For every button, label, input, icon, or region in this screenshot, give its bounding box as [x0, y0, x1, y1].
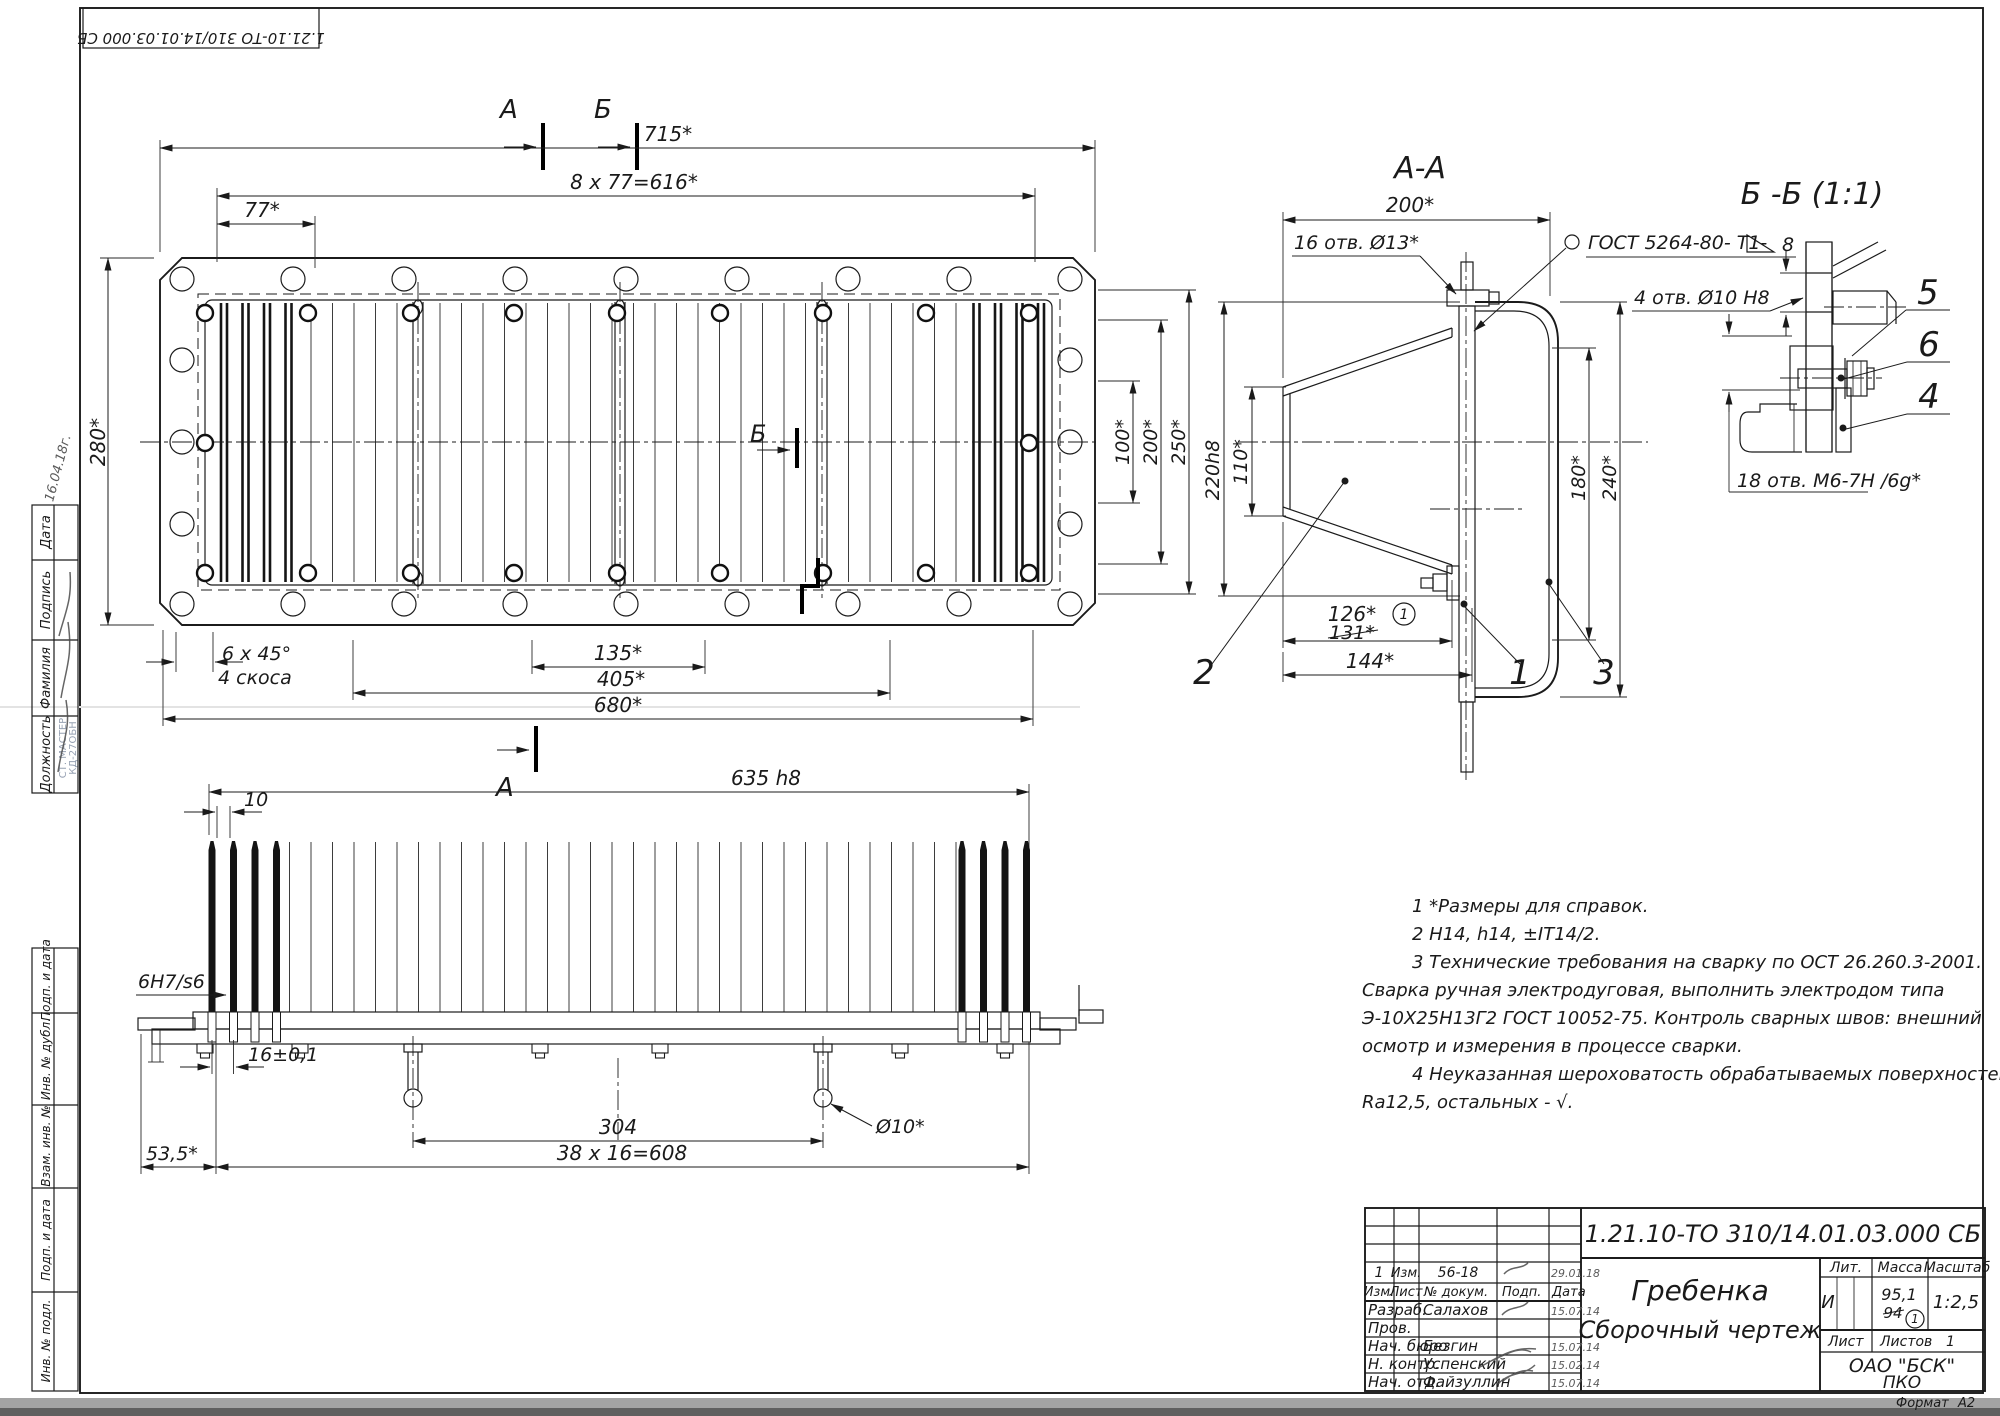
tb-mass-label: Масса — [1878, 1260, 1923, 1276]
callout-3: 3 — [1593, 653, 1615, 693]
callout-2: 2 — [1193, 653, 1215, 693]
tb-change-doc: 56-18 — [1438, 1265, 1479, 1281]
rev-mark: 1 — [1400, 607, 1409, 623]
dim-16: 16±0,1 — [248, 1044, 318, 1066]
dim-304: 304 — [599, 1115, 637, 1139]
drawing-sheet: 1.21.10-ТО 310/14.01.03.000 СБ Дата Подп… — [0, 0, 2000, 1416]
tb-scale-value: 1:2,5 — [1933, 1292, 1979, 1313]
plan-view: А Б Б А 715* 8 x 77=616* 77* 280* — [86, 95, 1196, 803]
corner-stamp: 1.21.10-ТО 310/14.01.03.000 СБ — [77, 8, 325, 48]
note-line: Э-10Х25Н13Г2 ГОСТ 10052-75. Контроль сва… — [1361, 1008, 1982, 1029]
dim-aa-200: 200* — [1386, 193, 1434, 217]
margin-stamp-top: Дата Подпись Фамилия Должность СТ. МАСТЕ… — [32, 433, 79, 794]
margin-handwriting: 16.04.18г. — [42, 433, 74, 503]
tb-format-value: А2 — [1957, 1396, 1975, 1411]
tb-part-name: Гребенка — [1631, 1274, 1768, 1307]
dim-110: 110* — [1230, 439, 1252, 485]
tb-name: Файзуллин — [1423, 1373, 1511, 1391]
label-holes-m6: 18 отв. М6-7Н /6g* — [1737, 470, 1921, 492]
dim-fit: 6H7/s6 — [138, 971, 205, 993]
tb-date: 15.07.14 — [1551, 1341, 1600, 1354]
dim-405: 405* — [597, 667, 645, 691]
detail-bb-view: Б -Б (1:1) 4 отв. Ø10 Н8 18 отв. — [1632, 177, 1950, 492]
callout-6: 6 — [1918, 325, 1940, 365]
dim-dia10: Ø10* — [875, 1116, 925, 1138]
tb-sheets-value: 1 — [1946, 1334, 1955, 1350]
dim-608: 38 x 16=608 — [557, 1141, 687, 1165]
label-holes10: 4 отв. Ø10 Н8 — [1634, 287, 1770, 309]
note-line: осмотр и измерения в процессе сварки. — [1362, 1036, 1743, 1057]
callout-5: 5 — [1917, 273, 1939, 313]
dim-131-old: 131* — [1329, 622, 1375, 644]
tb-header-doc: № докум. — [1423, 1285, 1488, 1300]
stamp-label-dolzhnost: Должность — [39, 716, 54, 794]
tb-org-line2: ПКО — [1883, 1373, 1921, 1393]
stamp-label: Подп. и дата — [39, 1199, 53, 1281]
section-mark-a-top: А — [498, 95, 518, 125]
tb-date: 15.07.14 — [1551, 1377, 1600, 1390]
callout-4: 4 — [1918, 377, 1940, 417]
tb-name: Успенский — [1423, 1355, 1506, 1373]
weld-leg: 8 — [1782, 234, 1794, 256]
dim-77: 77* — [244, 198, 279, 222]
tb-role: Пров. — [1368, 1319, 1412, 1337]
tb-header-list: Лист — [1389, 1285, 1423, 1300]
dim-144: 144* — [1346, 649, 1394, 673]
tb-change-num: 1 — [1375, 1265, 1384, 1281]
bolts — [197, 1044, 1013, 1058]
dim-chamfer-note: 4 скоса — [218, 667, 292, 689]
engineering-drawing-canvas: 1.21.10-ТО 310/14.01.03.000 СБ Дата Подп… — [0, 0, 2000, 1416]
dim-635h8: 635 h8 — [731, 766, 801, 790]
technical-notes: 1 *Размеры для справок. 2 Н14, h14, ±IT1… — [1079, 896, 2000, 1113]
dim-280: 280* — [86, 418, 110, 466]
stamp-label: Взам. инв. № — [39, 1105, 53, 1186]
tb-change-date: 29.01.18 — [1551, 1267, 1600, 1280]
flange-plate — [1421, 262, 1499, 772]
tb-change-izm: Изм. — [1391, 1266, 1422, 1281]
note-line: 1 *Размеры для справок. — [1412, 896, 1648, 917]
label-holes13: 16 отв. Ø13* — [1294, 232, 1419, 254]
tb-sheet-label: Лист — [1827, 1334, 1864, 1350]
dim-53: 53,5* — [146, 1143, 198, 1165]
side-view: 635 h8 10 — [136, 766, 1076, 1174]
tb-role: Разраб. — [1368, 1301, 1427, 1319]
stamp-label: Подп. и дата — [39, 939, 53, 1021]
margin-stamp-bottom: Подп. и дата Инв. № дубл. Взам. инв. № П… — [32, 939, 78, 1391]
tb-doc-number: 1.21.10-ТО 310/14.01.03.000 СБ — [1585, 1220, 1982, 1248]
dim-135: 135* — [594, 641, 642, 665]
tb-doc-type: Сборочный чертеж — [1579, 1316, 1822, 1344]
tb-sheets-label: Листов — [1879, 1334, 1932, 1350]
stamp-label: Инв. № дубл. — [39, 1018, 53, 1100]
tb-header-sign: Подп. — [1502, 1285, 1541, 1300]
tb-lit-label: Лит. — [1829, 1260, 1862, 1276]
stamp-label: Инв. № подл. — [39, 1300, 53, 1383]
section-aa-title: А-А — [1392, 151, 1446, 186]
dim-180: 180* — [1568, 455, 1590, 501]
stamp-label-familiya: Фамилия — [39, 647, 54, 709]
dim-680: 680* — [594, 693, 642, 717]
dim-200: 200* — [1140, 419, 1162, 465]
dim-chamfer: 6 x 45° — [222, 643, 291, 665]
note-line: 4 Неуказанная шероховатость обрабатываем… — [1412, 1064, 2000, 1085]
section-mark-b-inner: Б — [750, 420, 766, 448]
section-aa-view: А-А 200* 16 отв. Ø13* ГОСТ 5264-80- Т1- … — [1193, 151, 1796, 780]
tb-name: Безгин — [1423, 1337, 1478, 1355]
dim-240: 240* — [1599, 455, 1621, 501]
section-mark-a-bottom: А — [494, 773, 514, 803]
dim-100: 100* — [1112, 419, 1134, 465]
sheet-frame — [0, 8, 2000, 1416]
tb-header-date: Дата — [1551, 1285, 1586, 1300]
note-line: Ra12,5, остальных - √. — [1362, 1092, 1573, 1113]
hopper-body — [1283, 328, 1452, 574]
stamp-label-podpis: Подпись — [39, 571, 54, 629]
dim-250: 250* — [1168, 419, 1190, 465]
tb-mass-value: 95,1 — [1881, 1285, 1917, 1304]
dim-10: 10 — [244, 789, 268, 811]
stamp-label-data: Дата — [39, 515, 54, 550]
tb-date: 15.02.14 — [1551, 1359, 1600, 1372]
tb-mass-rev: 1 — [1911, 1312, 1919, 1326]
weld-note: ГОСТ 5264-80- Т1- — [1588, 232, 1767, 254]
note-line: 2 Н14, h14, ±IT14/2. — [1412, 924, 1600, 945]
dim-616: 8 x 77=616* — [570, 170, 698, 194]
tb-name: Салахов — [1423, 1301, 1488, 1319]
tb-format-label: Формат — [1896, 1396, 1949, 1411]
tb-date: 15.07.14 — [1551, 1305, 1600, 1318]
note-line: Сварка ручная электродуговая, выполнить … — [1362, 980, 1944, 1001]
faint-stamp-line2: КД-27ОБН — [68, 721, 79, 775]
callout-1: 1 — [1509, 653, 1531, 693]
dim-220h8: 220h8 — [1202, 440, 1224, 500]
tb-scale-label: Масштаб — [1924, 1260, 1991, 1276]
detail-bb-title: Б -Б (1:1) — [1741, 177, 1884, 212]
tooth-slots — [208, 1012, 1031, 1042]
title-block: 1.21.10-ТО 310/14.01.03.000 СБ Гребенка … — [1364, 1208, 1991, 1411]
dim-715: 715* — [644, 122, 692, 146]
tb-lit-value: И — [1821, 1292, 1834, 1313]
corner-doc-number: 1.21.10-ТО 310/14.01.03.000 СБ — [77, 29, 325, 47]
section-mark-b-top: Б — [594, 95, 612, 125]
note-line: 3 Технические требования на сварку по ОС… — [1412, 952, 1982, 973]
